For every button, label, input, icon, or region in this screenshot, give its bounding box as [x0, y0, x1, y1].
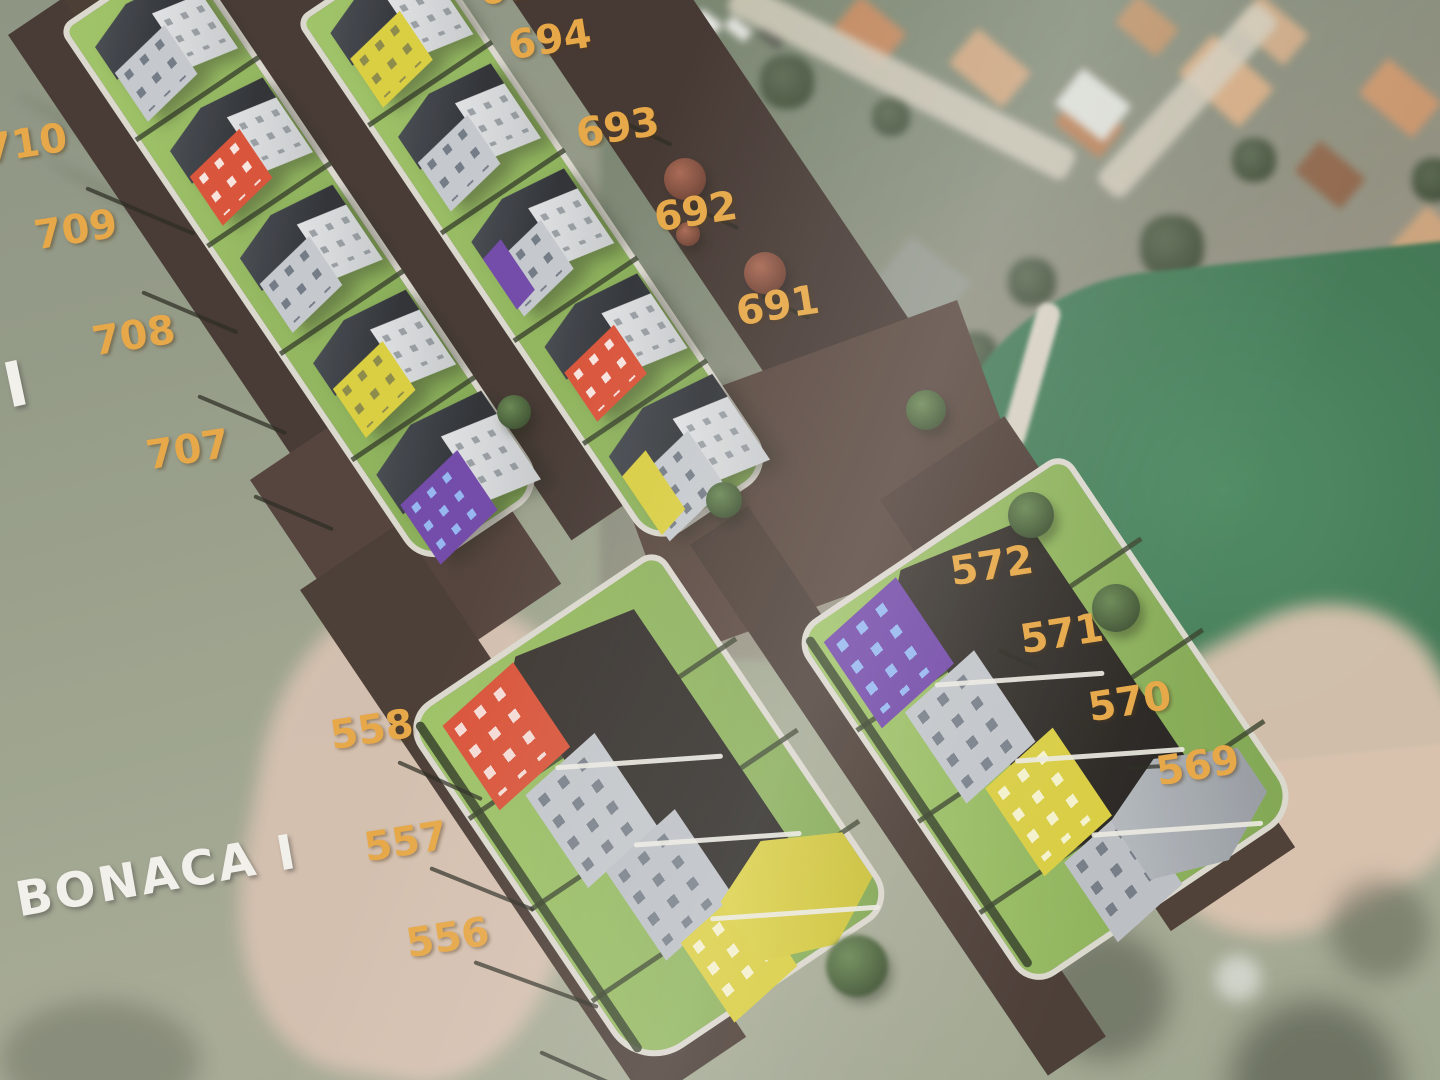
- tree-green: [826, 935, 888, 997]
- plot-label-710: 710: [0, 118, 70, 171]
- aerial-roof: [1115, 0, 1180, 57]
- tree-green: [706, 482, 742, 518]
- plot-label-707: 707: [143, 424, 232, 477]
- aerial-tree: [1412, 158, 1440, 202]
- neighbor-label-partial: I: [0, 346, 34, 422]
- aerial-tree: [872, 98, 910, 136]
- background-shadow-blob: [1330, 880, 1430, 980]
- aerial-tree: [1232, 138, 1276, 182]
- tree-green: [497, 395, 531, 429]
- aerial-tree: [1008, 258, 1056, 306]
- plot-label-709: 709: [31, 204, 120, 257]
- tree-green: [906, 390, 946, 430]
- site-plan-photo: 710 709 708 707 695 694 693 692 691 572 …: [0, 0, 1440, 1080]
- background-car-blob: [1215, 955, 1261, 1001]
- background-shadow-blob: [0, 1000, 200, 1080]
- aerial-tree: [760, 55, 814, 109]
- tree-green: [1008, 492, 1054, 538]
- aerial-roof: [1358, 58, 1440, 138]
- background-shadow-blob: [1230, 1000, 1400, 1080]
- aerial-roof: [1294, 140, 1366, 209]
- plot-label-708: 708: [89, 310, 178, 363]
